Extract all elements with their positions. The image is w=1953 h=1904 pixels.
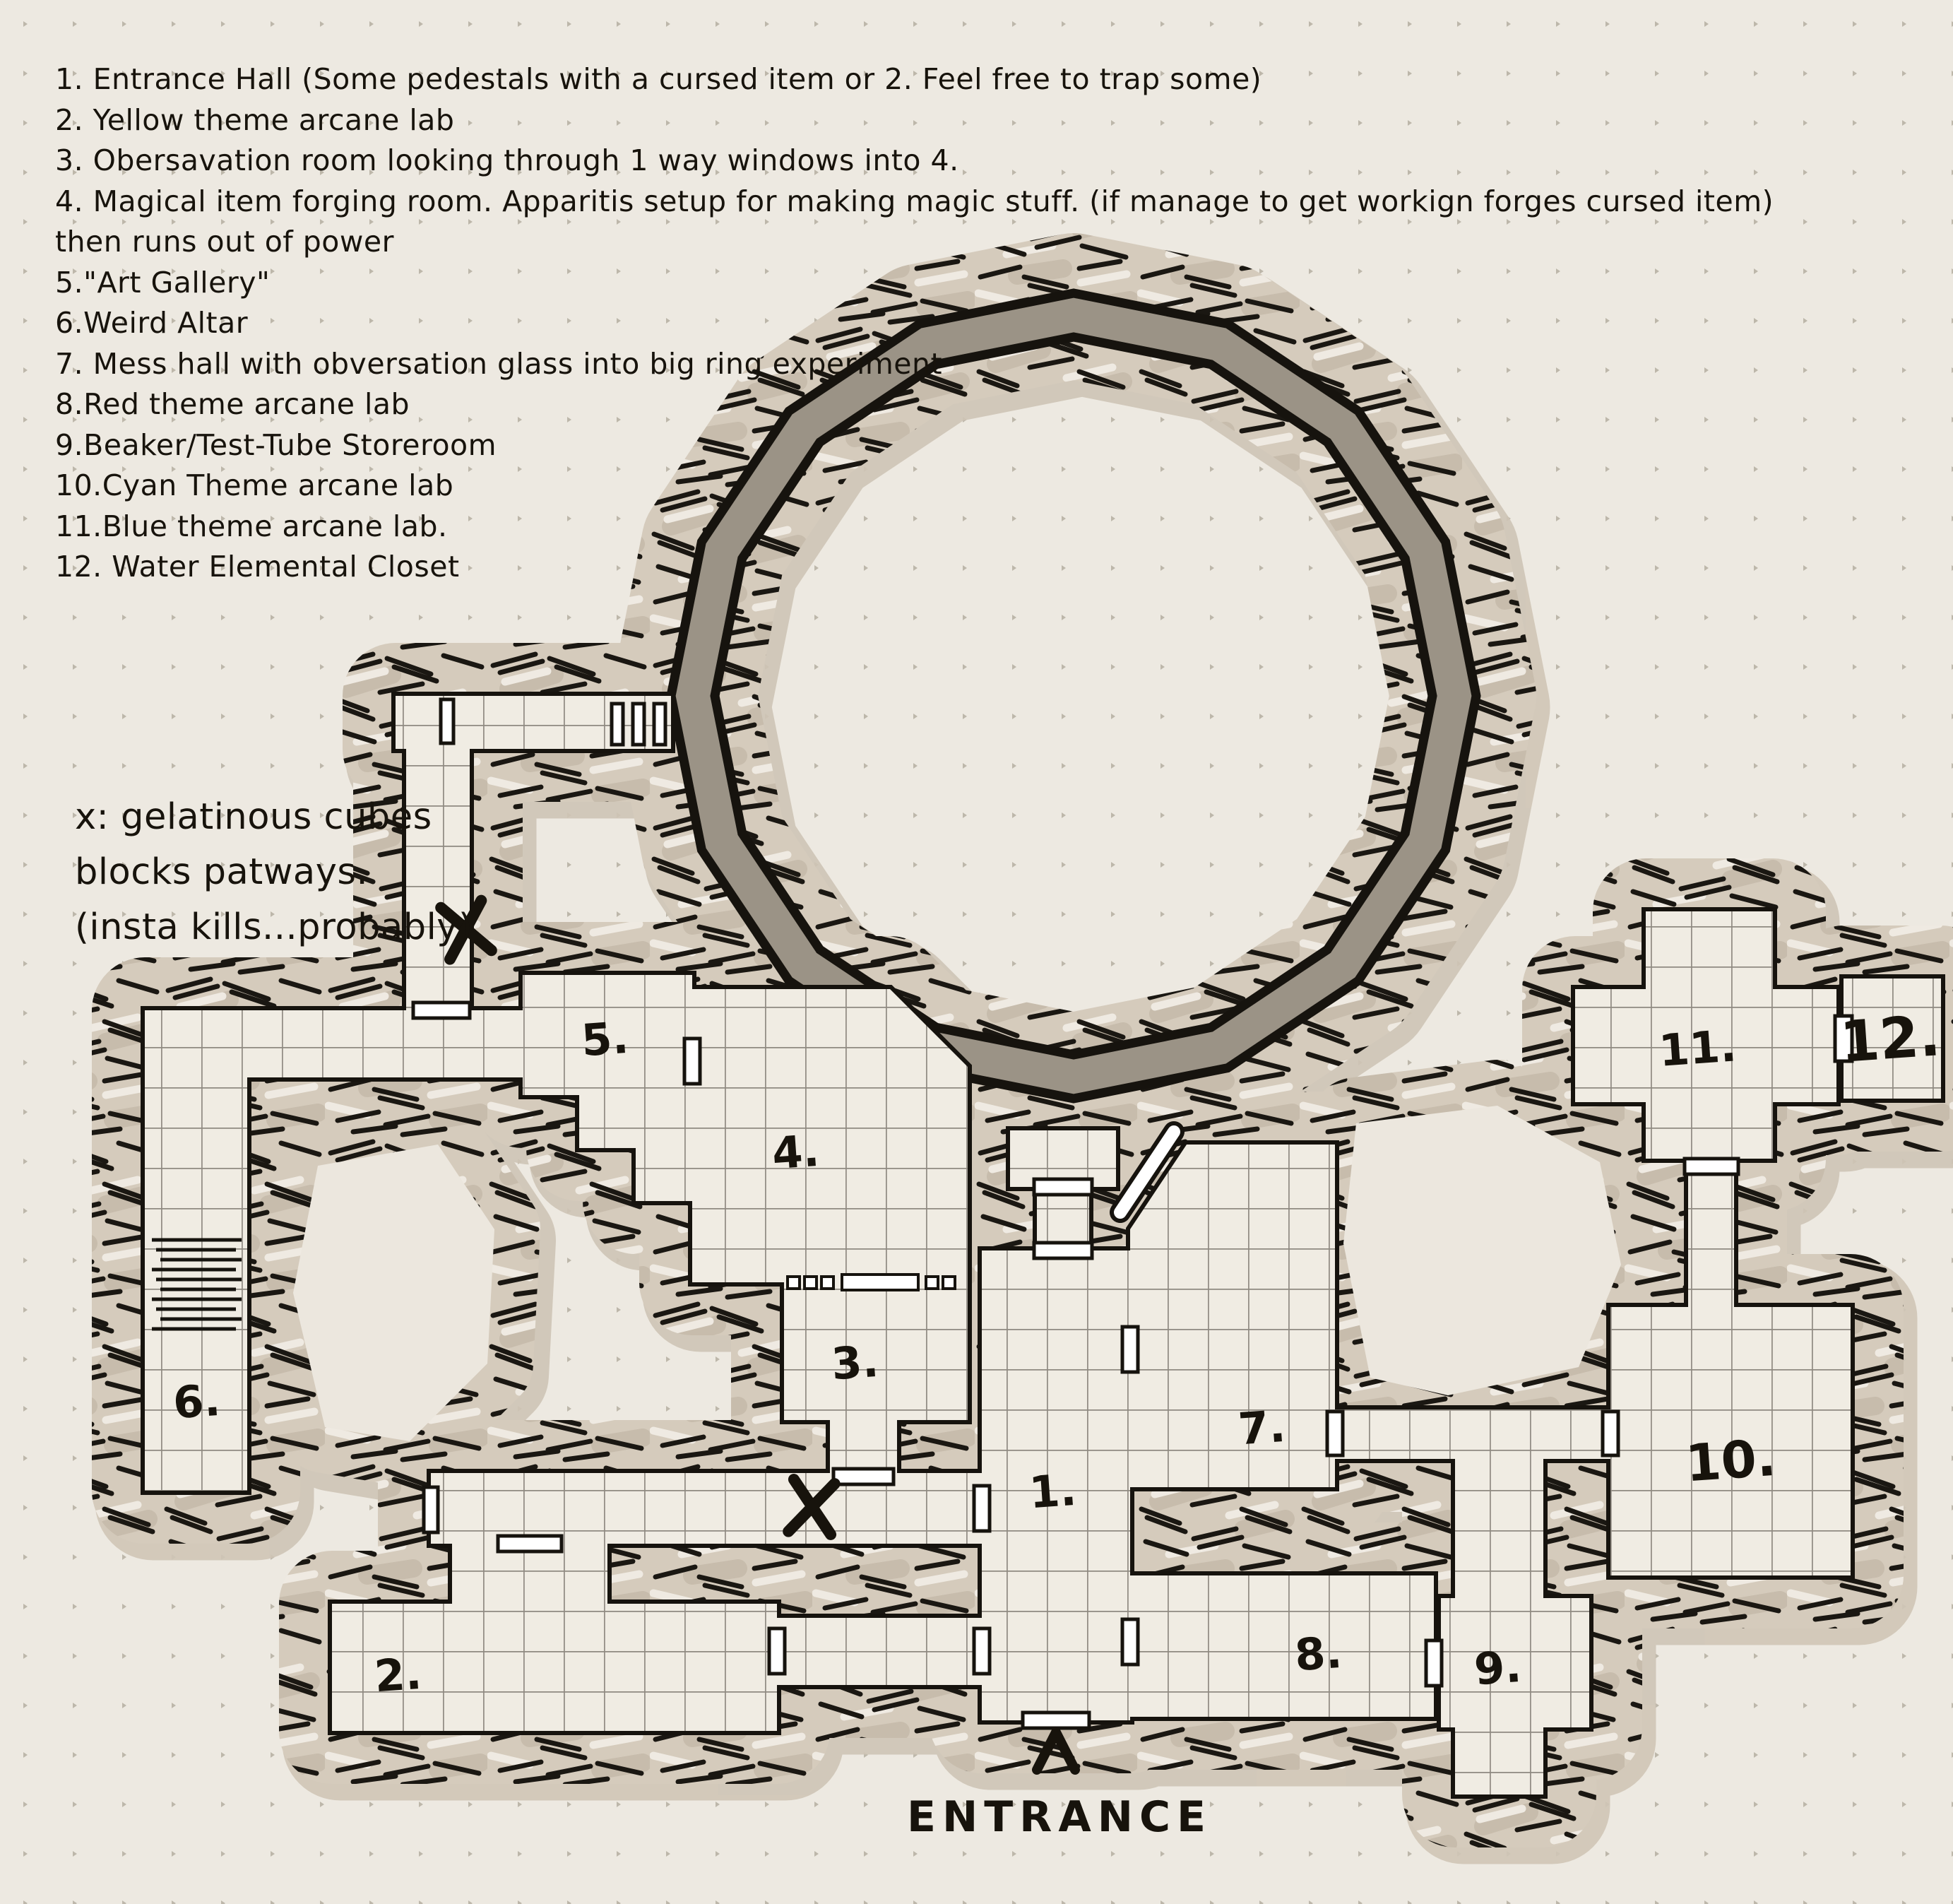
door xyxy=(1426,1640,1442,1686)
door xyxy=(1023,1713,1089,1728)
corridor-7-10-floor xyxy=(1335,1409,1610,1459)
note-line-3: (insta kills...probably) xyxy=(75,900,473,955)
room-label-room-3: 3. xyxy=(830,1335,881,1390)
legend-line-3: 3. Obersavation room looking through 1 w… xyxy=(55,141,1774,182)
entrance-label: ENTRANCE xyxy=(907,1792,1212,1842)
door xyxy=(612,704,623,745)
one-way-window-bar xyxy=(842,1275,918,1290)
legend-line-13: 12. Water Elemental Closet xyxy=(55,547,1774,588)
room-label-room-7: 7. xyxy=(1237,1400,1288,1455)
door xyxy=(684,1039,700,1084)
door xyxy=(1685,1159,1738,1174)
room-label-room-5: 5. xyxy=(580,1012,631,1066)
door xyxy=(1034,1243,1092,1258)
room-8-floor xyxy=(1130,1575,1434,1717)
door xyxy=(1122,1327,1138,1372)
room-4-floor xyxy=(692,989,968,1282)
door xyxy=(654,704,665,745)
room-label-room-6: 6. xyxy=(172,1374,222,1429)
dungeon-map-page: 6.5.4.3.2.1.7.10.11.12.8.9.ENTRANCE 1. E… xyxy=(0,0,1953,1904)
legend-line-10: 9.Beaker/Test-Tube Storeroom xyxy=(55,425,1774,466)
legend-line-4: 4. Magical item forging room. Apparitis … xyxy=(55,182,1774,223)
door xyxy=(974,1486,990,1531)
corridor-x-lower-floor xyxy=(431,1473,982,1544)
legend-line-11: 10.Cyan Theme arcane lab xyxy=(55,466,1774,507)
legend-line-7: 6.Weird Altar xyxy=(55,303,1774,344)
door xyxy=(413,1003,470,1018)
door xyxy=(633,704,644,745)
door xyxy=(769,1628,785,1674)
legend-line-5: then runs out of power xyxy=(55,222,1774,263)
door xyxy=(833,1469,894,1484)
legend-line-8: 7. Mess hall with obversation glass into… xyxy=(55,344,1774,385)
legend-line-1: 1. Entrance Hall (Some pedestals with a … xyxy=(55,59,1774,100)
one-way-window-pane xyxy=(821,1277,833,1289)
door xyxy=(1327,1412,1343,1455)
one-way-window-pane xyxy=(805,1277,817,1289)
room-label-room-1: 1. xyxy=(1028,1464,1079,1518)
room-7-floor xyxy=(1130,1145,1335,1487)
corridor-upper-left-floor xyxy=(396,696,671,749)
one-way-window-pane xyxy=(788,1277,800,1289)
door xyxy=(974,1628,990,1674)
room-label-room-10: 10. xyxy=(1684,1428,1778,1494)
door xyxy=(424,1487,438,1532)
one-way-window-pane xyxy=(926,1277,938,1289)
door xyxy=(441,699,453,743)
door xyxy=(498,1536,562,1551)
door xyxy=(1122,1619,1138,1664)
corridor-bottom-floor xyxy=(777,1618,982,1685)
legend-line-2: 2. Yellow theme arcane lab xyxy=(55,100,1774,141)
door xyxy=(1603,1412,1618,1455)
room-label-room-4: 4. xyxy=(771,1125,821,1179)
door xyxy=(1034,1179,1092,1195)
one-way-window-pane xyxy=(943,1277,955,1289)
legend-line-6: 5."Art Gallery" xyxy=(55,263,1774,304)
room-label-room-8: 8. xyxy=(1293,1626,1344,1681)
corridor-11-floor xyxy=(1688,1166,1734,1314)
legend-line-9: 8.Red theme arcane lab xyxy=(55,384,1774,425)
note-line-1: x: gelatinous cubes xyxy=(75,790,473,845)
room-label-room-9: 9. xyxy=(1473,1640,1524,1695)
legend-line-12: 11.Blue theme arcane lab. xyxy=(55,507,1774,548)
gelatinous-cube-note: x: gelatinous cubesblocks patways.(insta… xyxy=(75,790,473,955)
room-label-room-2: 2. xyxy=(373,1648,424,1702)
room-label-room-12: 12. xyxy=(1838,1003,1942,1075)
room-label-room-11: 11. xyxy=(1657,1019,1738,1076)
note-line-2: blocks patways. xyxy=(75,845,473,900)
legend: 1. Entrance Hall (Some pedestals with a … xyxy=(55,59,1774,588)
